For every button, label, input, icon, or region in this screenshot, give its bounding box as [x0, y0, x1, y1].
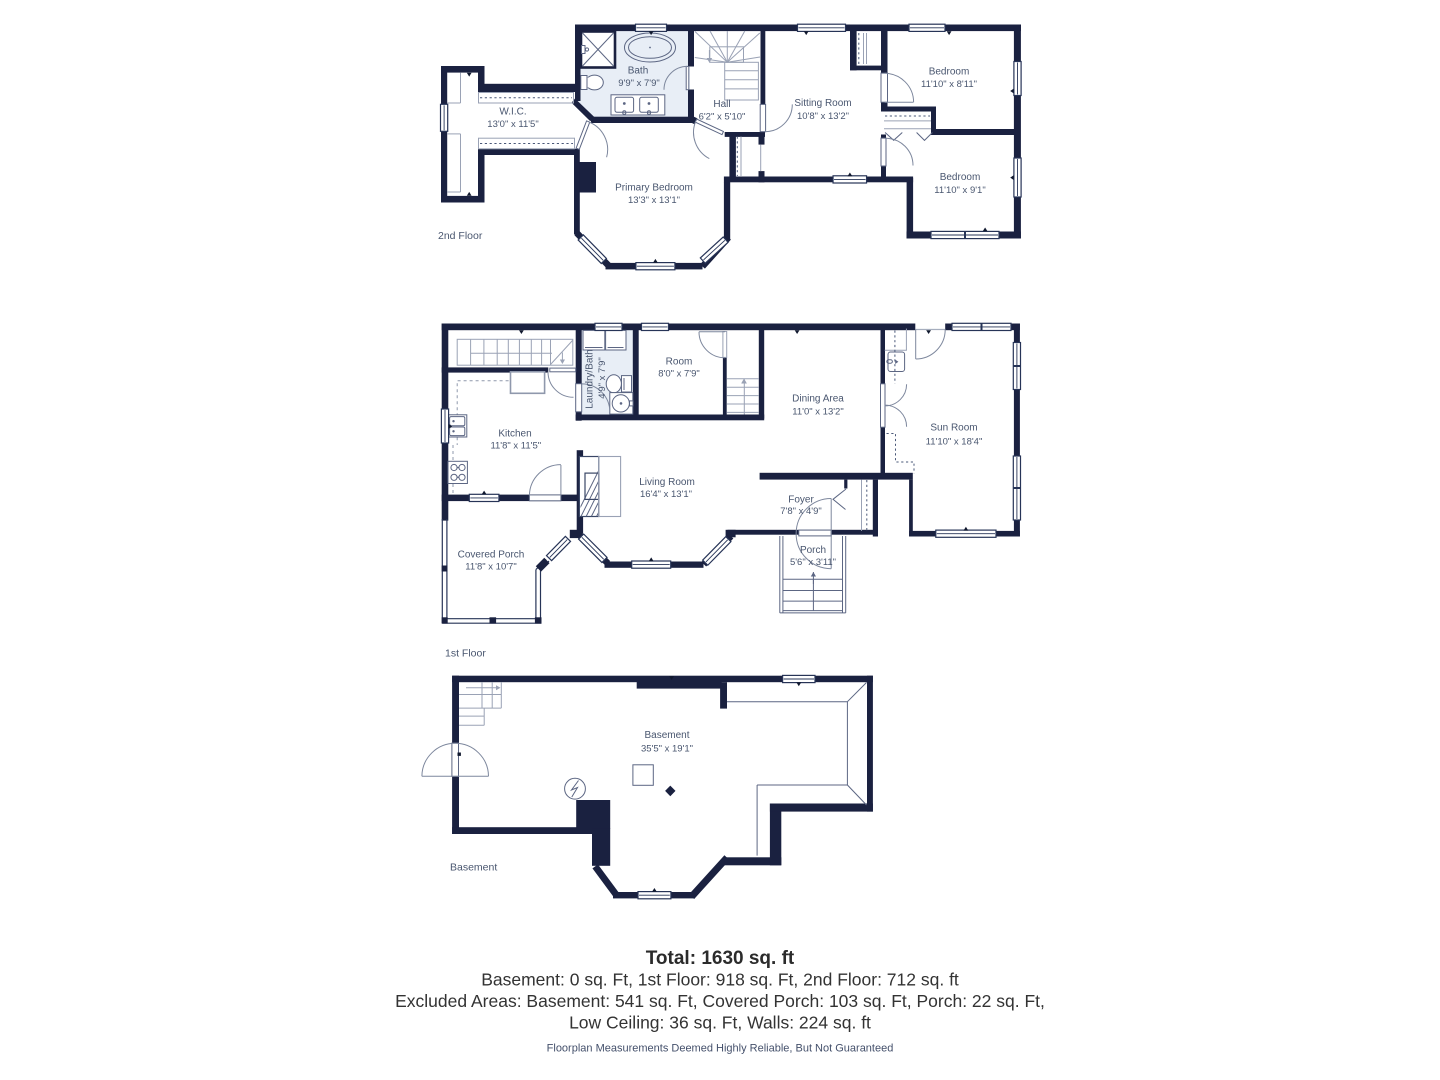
svg-text:13'3" x 13'1": 13'3" x 13'1"	[628, 195, 680, 206]
svg-text:Bath: Bath	[628, 66, 649, 77]
svg-text:6'2" x 5'10": 6'2" x 5'10"	[699, 112, 746, 123]
svg-text:1st Floor: 1st Floor	[445, 648, 486, 660]
svg-text:Total: 1630 sq. ft: Total: 1630 sq. ft	[646, 948, 795, 969]
svg-text:11'0" x 13'2": 11'0" x 13'2"	[792, 407, 843, 418]
svg-text:11'8" x 11'5": 11'8" x 11'5"	[490, 441, 541, 452]
svg-text:Living Room: Living Room	[639, 477, 695, 488]
svg-text:Bedroom: Bedroom	[929, 67, 970, 78]
svg-text:Primary Bedroom: Primary Bedroom	[615, 183, 693, 194]
svg-text:Sitting Room: Sitting Room	[794, 98, 851, 109]
svg-text:W.I.C.: W.I.C.	[499, 107, 526, 118]
svg-text:11'10" x 18'4": 11'10" x 18'4"	[926, 437, 983, 448]
svg-text:Excluded Areas: Basement: 541: Excluded Areas: Basement: 541 sq. Ft, Co…	[395, 991, 1045, 1011]
svg-text:11'10" x 8'11": 11'10" x 8'11"	[921, 79, 977, 90]
svg-text:7'8" x 4'9": 7'8" x 4'9"	[780, 506, 822, 517]
svg-text:Basement: Basement	[450, 862, 497, 874]
svg-text:Porch: Porch	[800, 545, 826, 556]
svg-text:Bedroom: Bedroom	[940, 172, 981, 183]
svg-text:Dining Area: Dining Area	[792, 394, 844, 405]
svg-text:11'8" x 10'7": 11'8" x 10'7"	[465, 562, 516, 573]
svg-text:Floorplan Measurements Deemed: Floorplan Measurements Deemed Highly Rel…	[547, 1043, 894, 1055]
svg-text:Hall: Hall	[713, 99, 730, 110]
svg-text:Sun Room: Sun Room	[930, 423, 977, 434]
svg-text:Room: Room	[666, 357, 693, 368]
svg-text:Covered Porch: Covered Porch	[458, 550, 525, 561]
svg-text:Laundry/Bath: Laundry/Bath	[585, 349, 596, 409]
svg-text:4'9" x 7'9": 4'9" x 7'9"	[597, 357, 608, 399]
svg-text:8'0" x 7'9": 8'0" x 7'9"	[658, 369, 700, 380]
svg-text:Low Ceiling: 36 sq. Ft, Walls:: Low Ceiling: 36 sq. Ft, Walls: 224 sq. f…	[569, 1013, 871, 1033]
svg-text:Kitchen: Kitchen	[498, 429, 531, 440]
svg-text:Basement: 0 sq. Ft, 1st Floor:: Basement: 0 sq. Ft, 1st Floor: 918 sq. F…	[481, 970, 959, 990]
svg-text:2nd Floor: 2nd Floor	[438, 230, 483, 242]
svg-text:16'4" x 13'1": 16'4" x 13'1"	[640, 489, 692, 500]
svg-text:35'5" x 19'1": 35'5" x 19'1"	[641, 744, 693, 755]
svg-text:10'8" x 13'2": 10'8" x 13'2"	[797, 111, 849, 122]
svg-text:11'10" x 9'1": 11'10" x 9'1"	[934, 185, 985, 196]
svg-text:13'0" x 11'5": 13'0" x 11'5"	[487, 119, 538, 130]
svg-text:5'6" x 3'11": 5'6" x 3'11"	[790, 557, 836, 568]
svg-text:Foyer: Foyer	[788, 495, 814, 506]
svg-text:Basement: Basement	[644, 730, 689, 741]
svg-text:9'9" x 7'9": 9'9" x 7'9"	[618, 78, 660, 89]
